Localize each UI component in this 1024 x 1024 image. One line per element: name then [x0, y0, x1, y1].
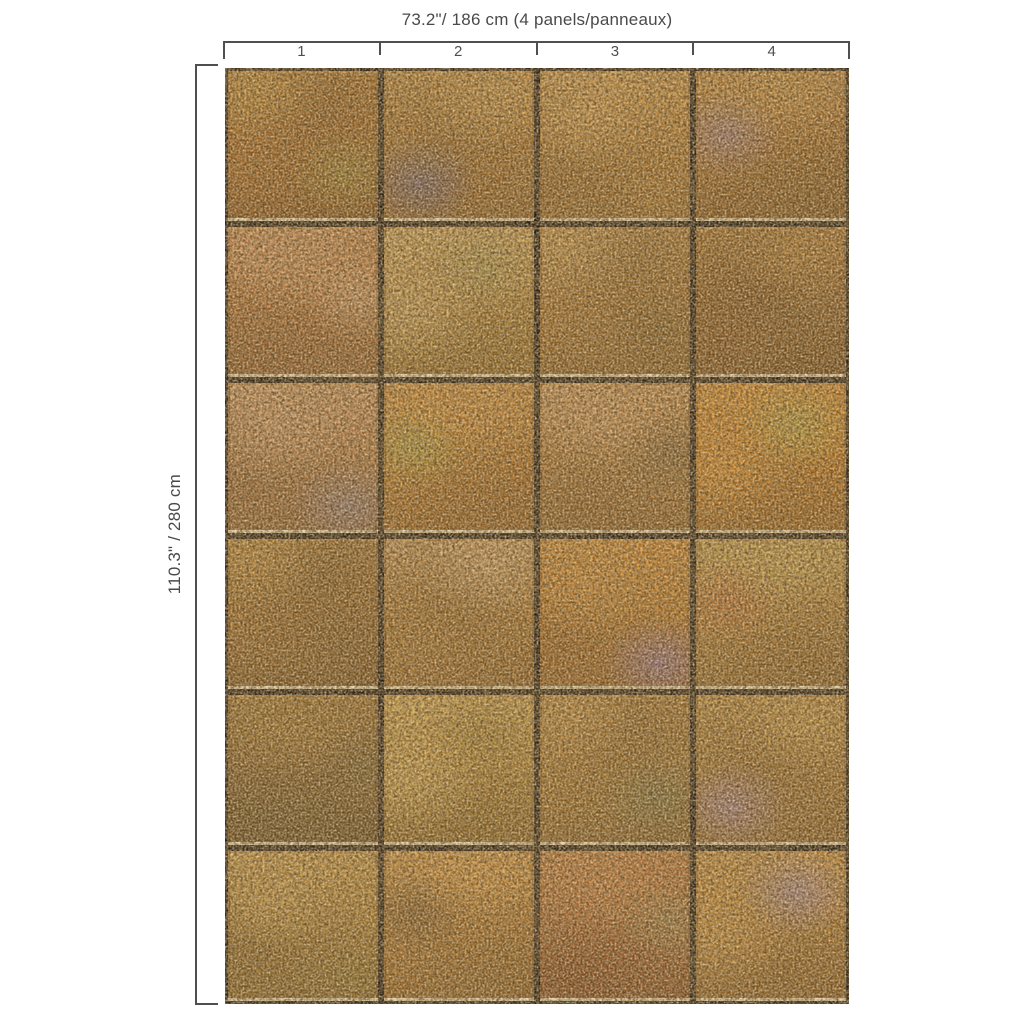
height-dimension-label: 110.3" / 280 cm	[165, 474, 185, 594]
wall-tile-r5c4	[696, 695, 846, 845]
wall-tile-r2c1	[228, 227, 378, 377]
wall-tile-r5c3	[540, 695, 690, 845]
wall-tile-r4c1	[228, 539, 378, 689]
wall-tile-r4c3	[540, 539, 690, 689]
panel-grid	[225, 68, 849, 1004]
product-dimension-diagram: 73.2"/ 186 cm (4 panels/panneaux) 1 2 3 …	[0, 0, 1024, 1024]
wall-tile-r6c3	[540, 851, 690, 1001]
wall-tile-r1c2	[384, 71, 534, 221]
panel-number-3: 3	[537, 43, 694, 60]
wall-tile-r6c2	[384, 851, 534, 1001]
panel-number-1: 1	[223, 43, 380, 60]
wall-tile-r3c4	[696, 383, 846, 533]
wall-tile-r1c1	[228, 71, 378, 221]
wall-tile-r1c4	[696, 71, 846, 221]
width-dimension-bracket: 1 2 3 4	[223, 41, 850, 58]
bracket-foot-top	[197, 64, 218, 66]
wall-tile-r4c4	[696, 539, 846, 689]
height-dimension-bracket	[195, 64, 216, 1005]
wall-tile-r5c1	[228, 695, 378, 845]
bracket-foot-bottom	[197, 1003, 218, 1005]
wall-tile-r4c2	[384, 539, 534, 689]
wall-tile-r5c2	[384, 695, 534, 845]
wall-tile-r3c3	[540, 383, 690, 533]
wall-tile-r6c1	[228, 851, 378, 1001]
wall-tile-r2c2	[384, 227, 534, 377]
wall-tile-r3c2	[384, 383, 534, 533]
wall-tile-r2c3	[540, 227, 690, 377]
wall-tile-r6c4	[696, 851, 846, 1001]
height-dimension-label-wrap: 110.3" / 280 cm	[161, 64, 189, 1005]
wall-tile-r1c3	[540, 71, 690, 221]
wall-tile-r2c4	[696, 227, 846, 377]
wall-tile-r3c1	[228, 383, 378, 533]
panel-number-4: 4	[693, 43, 850, 60]
panel-number-2: 2	[380, 43, 537, 60]
width-dimension-label: 73.2"/ 186 cm (4 panels/panneaux)	[225, 10, 849, 30]
